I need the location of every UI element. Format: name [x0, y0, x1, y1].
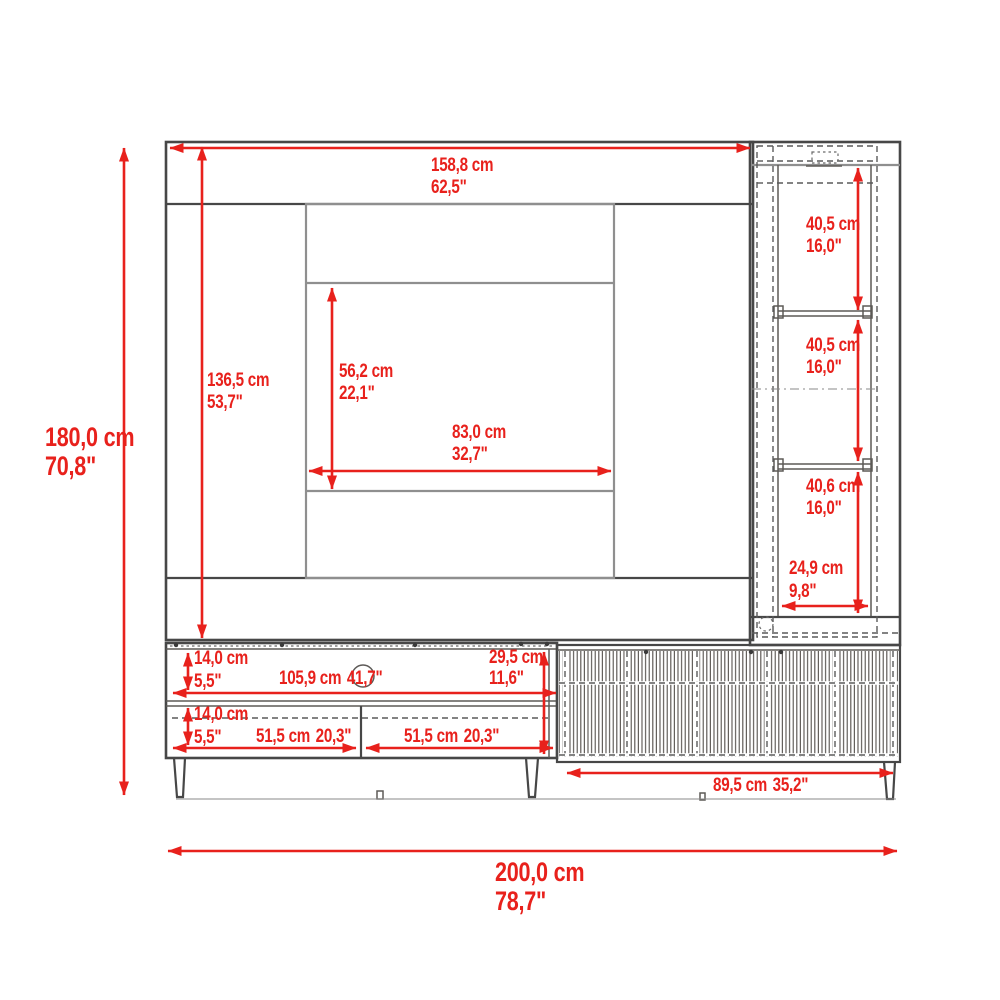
- console-opening-width-label: 105,9 cm41,7": [279, 666, 383, 688]
- sideboard-slat-doors: [557, 645, 900, 762]
- dim-panel-height: 136,5 cm 53,7": [202, 147, 269, 638]
- recess-width-in-label: 32,7": [452, 442, 488, 464]
- panel-width-cm-label: 158,8 cm: [431, 153, 493, 175]
- fitting-dot: [545, 642, 549, 646]
- fitting-dot: [174, 643, 178, 647]
- console-upper-shelf-cm-label: 14,0 cm: [194, 646, 248, 668]
- dim-overall-height: 180,0 cm 70,8": [45, 148, 134, 795]
- dimension-annotations: 180,0 cm 70,8" 200,0 cm 78,7" 158,8 cm 6…: [45, 147, 897, 917]
- leg-left: [174, 758, 185, 797]
- hinge-dot: [644, 650, 648, 654]
- cabinet-bottom-in-label: 16,0": [806, 496, 842, 518]
- dim-console-lower-shelf-height: 14,0 cm 5,5": [188, 702, 248, 747]
- dim-overall-width: 200,0 cm 78,7": [168, 851, 897, 917]
- fluted-slat-texture: [559, 651, 898, 757]
- panel-height-cm-label: 136,5 cm: [207, 368, 269, 390]
- dim-panel-width: 158,8 cm 62,5": [170, 148, 750, 197]
- recess-height-in-label: 22,1": [339, 381, 375, 403]
- cabinet-bottom-cm-label: 40,6 cm: [806, 474, 860, 496]
- overall-height-in-label: 70,8": [45, 452, 96, 482]
- overall-height-cm-label: 180,0 cm: [45, 423, 134, 453]
- overall-width-in-label: 78,7": [495, 887, 546, 917]
- hinge-dot: [749, 650, 753, 654]
- console-lower-shelf-in-label: 5,5": [194, 725, 221, 747]
- console-height-cm-label: 29,5 cm: [489, 645, 543, 667]
- fitting-dot: [413, 643, 417, 647]
- console-left-compartment-label: 51,5 cm20,3": [256, 724, 351, 746]
- sideboard-width-label: 89,5 cm35,2": [713, 773, 808, 795]
- cabinet-width-cm-label: 24,9 cm: [789, 556, 843, 578]
- furniture-dimension-diagram: 180,0 cm 70,8" 200,0 cm 78,7" 158,8 cm 6…: [0, 0, 1000, 1000]
- panel-height-in-label: 53,7": [207, 390, 243, 412]
- leg-right: [884, 762, 895, 799]
- cabinet-top-in-label: 16,0": [806, 234, 842, 256]
- dim-console-upper-shelf-height: 14,0 cm 5,5": [188, 646, 248, 691]
- back-panel-outline: [166, 142, 753, 640]
- cabinet-width-in-label: 9,8": [789, 579, 816, 601]
- cabinet-middle-in-label: 16,0": [806, 355, 842, 377]
- dim-tv-recess-height: 56,2 cm 22,1": [332, 288, 393, 489]
- panel-width-in-label: 62,5": [431, 175, 467, 197]
- dim-console-right-compartment: 51,5 cm20,3": [366, 724, 553, 748]
- console-lower-shelf-cm-label: 14,0 cm: [194, 702, 248, 724]
- console-upper-shelf-in-label: 5,5": [194, 669, 221, 691]
- dim-tv-recess-width: 83,0 cm 32,7": [309, 420, 611, 471]
- dim-cabinet-top-section: 40,5 cm 16,0": [806, 168, 860, 310]
- hinge-dot: [779, 650, 783, 654]
- recess-height-cm-label: 56,2 cm: [339, 359, 393, 381]
- recess-width-cm-label: 83,0 cm: [452, 420, 506, 442]
- dimension-drawing-canvas: 180,0 cm 70,8" 200,0 cm 78,7" 158,8 cm 6…: [0, 0, 1000, 1000]
- dim-cabinet-middle-section: 40,5 cm 16,0": [806, 320, 860, 461]
- dim-cabinet-width: 24,9 cm 9,8": [782, 556, 868, 606]
- overall-width-cm-label: 200,0 cm: [495, 858, 584, 888]
- cabinet-hinge-detail: [812, 152, 838, 163]
- cabinet-cam-detail: [759, 617, 773, 631]
- leg-center: [526, 758, 538, 797]
- cabinet-middle-cm-label: 40,5 cm: [806, 333, 860, 355]
- fitting-dot: [280, 643, 284, 647]
- cabinet-top-cm-label: 40,5 cm: [806, 212, 860, 234]
- console-right-compartment-label: 51,5 cm20,3": [404, 724, 499, 746]
- dim-sideboard-doors-width: 89,5 cm35,2": [567, 773, 893, 795]
- back-panel: [166, 142, 753, 640]
- foot-glide-left: [377, 791, 383, 799]
- console-height-in-label: 11,6": [489, 666, 524, 688]
